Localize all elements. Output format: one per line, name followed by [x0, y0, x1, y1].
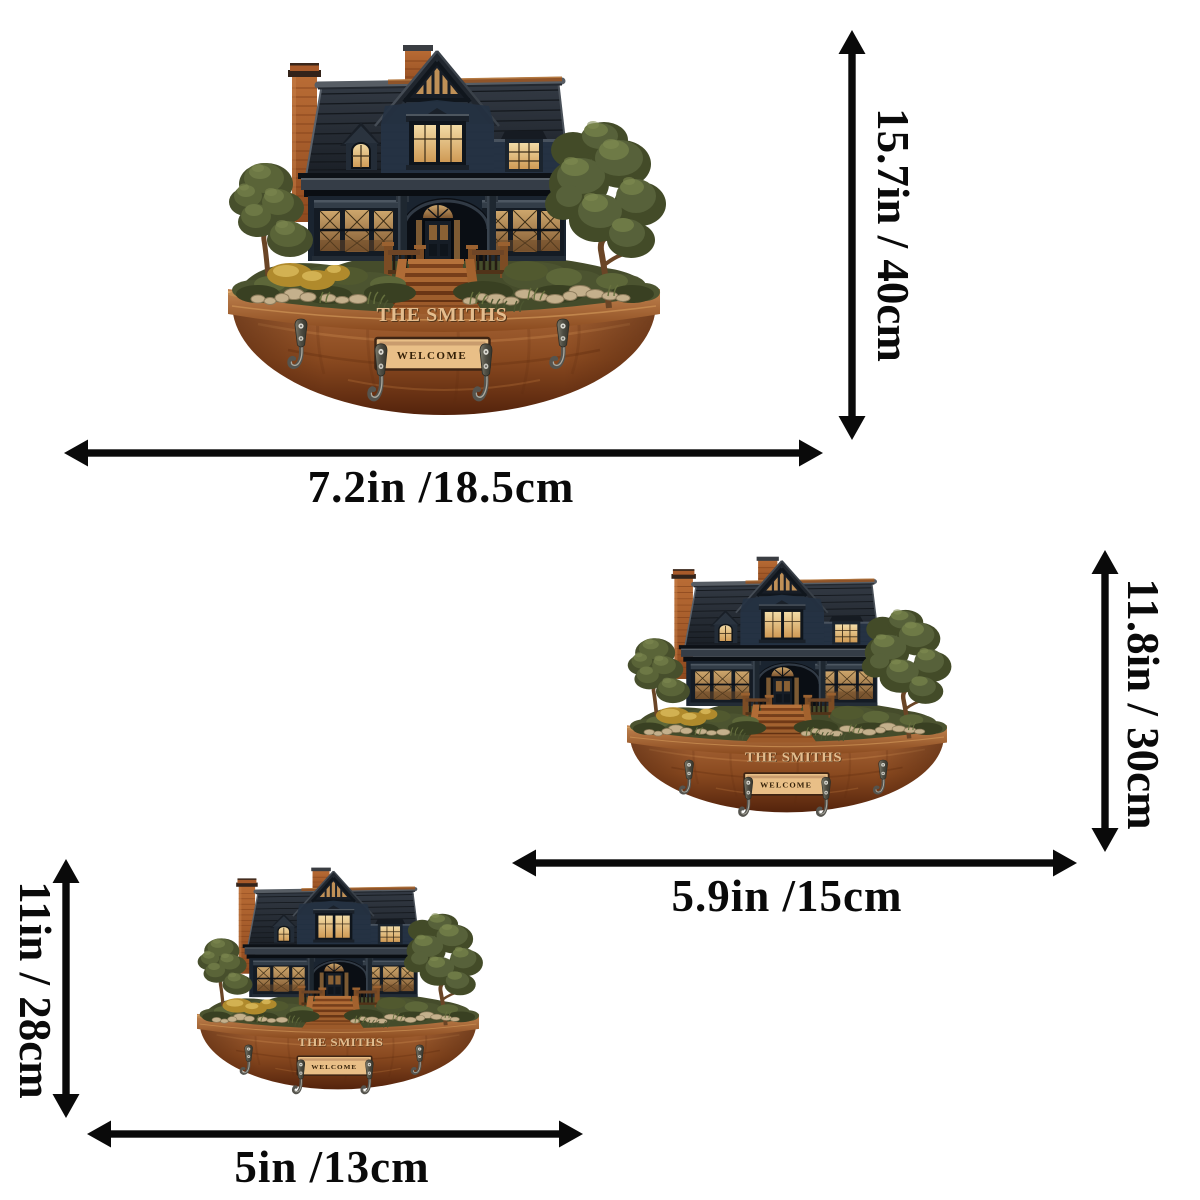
svg-text:5.9in /15cm: 5.9in /15cm	[672, 871, 903, 921]
svg-text:7.2in /18.5cm: 7.2in /18.5cm	[308, 462, 575, 512]
svg-text:11in / 28cm: 11in / 28cm	[10, 881, 60, 1099]
svg-text:5in /13cm: 5in /13cm	[234, 1142, 429, 1192]
svg-text:15.7in / 40cm: 15.7in / 40cm	[868, 108, 918, 362]
svg-text:11.8in / 30cm: 11.8in / 30cm	[1118, 578, 1168, 829]
